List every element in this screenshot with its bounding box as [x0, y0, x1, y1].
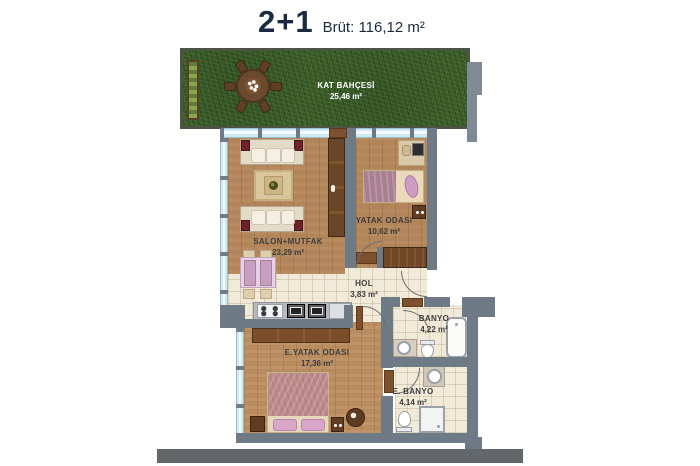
roof-garden: KAT BAHÇESİ 25,46 m²	[180, 48, 470, 129]
nightstand-knob	[416, 211, 419, 214]
room-name: KAT BAHÇESİ	[317, 81, 374, 92]
sofa	[240, 139, 304, 165]
wardrobe	[328, 138, 345, 237]
wall-segment	[344, 305, 353, 328]
nightstand-knob	[339, 424, 342, 427]
placemat	[244, 260, 256, 286]
sink	[397, 341, 411, 355]
stove	[257, 304, 283, 318]
wall-segment	[245, 319, 353, 328]
room-label-ensuite: E. BANYO 4,14 m²	[392, 387, 433, 409]
coffee-table-bowl	[269, 181, 278, 190]
wall-segment	[381, 297, 400, 307]
desk	[398, 140, 425, 166]
room-area: 10,62 m²	[356, 227, 413, 238]
wall-segment	[427, 128, 437, 270]
bathtub-drain	[455, 323, 458, 326]
nightstand	[250, 416, 265, 432]
unit-type-label: 2+1	[258, 4, 314, 40]
sofa	[240, 206, 304, 232]
room-area: 25,46 m²	[317, 92, 374, 103]
wall-segment	[467, 317, 478, 443]
sink	[427, 369, 442, 384]
blanket	[364, 171, 396, 202]
room-label-bedroom: YATAK ODASI 10,62 m²	[356, 216, 413, 238]
garden-chair	[270, 82, 282, 91]
nightstand-knob	[334, 424, 337, 427]
room-label-master-bedroom: E.YATAK ODASI 17,36 m²	[285, 348, 350, 370]
wall-segment	[345, 128, 356, 268]
floor-plan: 2+1 Brüt: 116,12 m² KAT BAHÇESİ 25,46 m²	[0, 0, 700, 466]
double-bed	[267, 372, 329, 433]
room-name: HOL	[350, 279, 378, 290]
ground-bar	[157, 449, 523, 463]
garden-table	[234, 67, 272, 105]
dining-table	[240, 257, 276, 288]
room-label-bathroom: BANYO 4,22 m²	[419, 314, 449, 336]
monitor	[412, 143, 424, 156]
placemat	[260, 260, 272, 286]
kitchen-sink	[308, 304, 326, 318]
pillow	[403, 174, 420, 199]
shower	[419, 406, 445, 433]
room-name: YATAK ODASI	[356, 216, 413, 227]
nightstand	[331, 417, 344, 432]
room-label-hall: HOL 3,83 m²	[350, 279, 378, 301]
master-bedroom-door	[356, 306, 363, 330]
room-area: 17,36 m²	[285, 359, 350, 370]
desk-chair	[402, 145, 411, 156]
flower-centerpiece	[245, 78, 261, 94]
nightstand-knob	[421, 211, 424, 214]
room-name: E. BANYO	[392, 387, 433, 398]
wall-segment	[424, 297, 450, 307]
room-name: SALON+MUTFAK	[253, 237, 323, 248]
blanket	[268, 373, 328, 416]
tv-unit	[252, 328, 350, 343]
wall-segment	[467, 62, 482, 95]
nightstand	[412, 205, 426, 219]
toilet-tank	[420, 340, 435, 345]
wall-segment	[467, 94, 477, 142]
room-area: 4,22 m²	[419, 325, 449, 336]
wall-segment	[462, 297, 495, 317]
pillow	[301, 419, 325, 431]
wall-segment	[390, 357, 478, 367]
garden-chair	[224, 82, 236, 91]
single-bed	[363, 170, 424, 203]
pillow	[273, 419, 297, 431]
bathroom-door	[402, 298, 423, 307]
room-area: 23,29 m²	[253, 248, 323, 259]
planter	[187, 60, 199, 120]
window-band	[236, 328, 244, 433]
room-label-salon: SALON+MUTFAK 23,29 m²	[253, 237, 323, 259]
wall-segment	[220, 305, 245, 328]
window-band	[220, 138, 228, 305]
room-label-garden: KAT BAHÇESİ 25,46 m²	[317, 81, 374, 103]
rug	[254, 170, 293, 201]
wardrobe-handle	[331, 185, 335, 192]
shower-drain	[437, 425, 440, 428]
room-area: 3,83 m²	[350, 290, 378, 301]
wall-segment	[381, 396, 393, 438]
side-table	[346, 408, 365, 427]
wardrobe	[383, 247, 427, 268]
plan-title: 2+1 Brüt: 116,12 m²	[258, 4, 425, 40]
dishwasher	[287, 304, 305, 318]
wall-segment	[236, 433, 478, 443]
dining-chair	[243, 289, 255, 299]
toilet	[398, 411, 411, 427]
room-area: 4,14 m²	[392, 398, 433, 409]
room-name: E.YATAK ODASI	[285, 348, 350, 359]
room-name: BANYO	[419, 314, 449, 325]
gross-area-label: Brüt: 116,12 m²	[323, 19, 425, 36]
toilet-tank	[396, 427, 412, 432]
window-band	[220, 128, 427, 138]
garden-door	[329, 128, 347, 138]
dining-chair	[260, 289, 272, 299]
